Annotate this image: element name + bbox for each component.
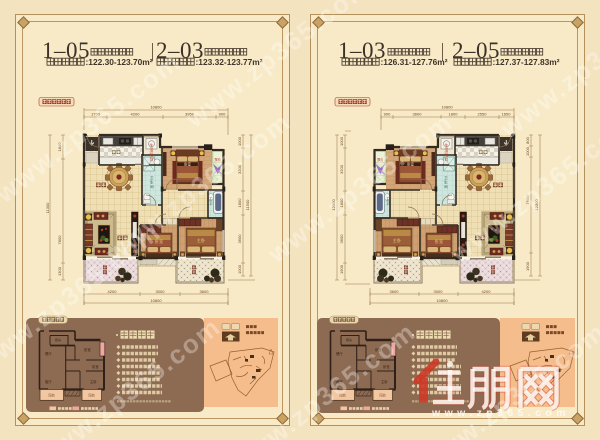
svg-text:卧室: 卧室 (84, 347, 91, 352)
svg-text:3600: 3600 (237, 234, 242, 244)
svg-text:12300: 12300 (331, 199, 336, 211)
svg-text:10800: 10800 (441, 105, 453, 110)
svg-text:台: 台 (445, 157, 449, 162)
svg-text:4200: 4200 (131, 112, 141, 117)
svg-text:阳台: 阳台 (49, 393, 55, 398)
svg-text:厨房: 厨房 (55, 337, 61, 342)
svg-text:主卧: 主卧 (393, 237, 401, 244)
svg-text:3200: 3200 (339, 164, 344, 174)
svg-text:生: 生 (444, 180, 448, 185)
svg-text:主卧: 主卧 (197, 237, 205, 244)
svg-text:4200: 4200 (108, 289, 118, 294)
svg-text:卫: 卫 (150, 176, 154, 180)
svg-text:生: 生 (150, 143, 154, 148)
svg-text::123.32-123.77m²: :123.32-123.77m² (196, 57, 263, 67)
svg-text:生: 生 (150, 180, 154, 185)
svg-text:卧室: 卧室 (435, 238, 443, 245)
svg-text:3600: 3600 (339, 234, 344, 244)
svg-text:1900: 1900 (339, 264, 344, 274)
svg-text::127.37-127.83m²: :127.37-127.83m² (493, 57, 560, 67)
svg-text:主卧: 主卧 (90, 379, 97, 384)
svg-text:阳: 阳 (150, 152, 154, 157)
svg-text:客厅: 客厅 (336, 379, 343, 384)
svg-text:3600: 3600 (390, 289, 400, 294)
svg-text:主卧: 主卧 (381, 379, 388, 384)
svg-text:10800: 10800 (436, 298, 448, 303)
svg-text:阳: 阳 (445, 152, 449, 157)
svg-text:卧室: 卧室 (184, 162, 191, 167)
svg-text:卫: 卫 (444, 176, 448, 180)
svg-text:2550: 2550 (478, 112, 488, 117)
svg-text:1900: 1900 (525, 261, 530, 271)
svg-text:生: 生 (445, 143, 449, 148)
svg-text:卧室: 卧室 (375, 347, 382, 352)
svg-text:11300: 11300 (45, 202, 50, 214)
svg-text:7800: 7800 (57, 235, 62, 245)
svg-text:阳台: 阳台 (89, 393, 95, 398)
svg-text:7600: 7600 (525, 195, 530, 205)
svg-text:900: 900 (384, 112, 391, 117)
svg-text:1000: 1000 (525, 146, 530, 156)
svg-text:3950: 3950 (185, 112, 195, 117)
svg-text:4200: 4200 (482, 289, 492, 294)
svg-text:阳台: 阳台 (380, 393, 386, 398)
svg-text:间: 间 (444, 184, 448, 189)
svg-text:3000: 3000 (434, 289, 444, 294)
svg-text:10800: 10800 (150, 105, 162, 110)
svg-text:主: 主 (209, 196, 213, 201)
svg-text:1000: 1000 (339, 136, 344, 146)
svg-text:11500: 11500 (245, 199, 250, 211)
svg-text:卧室: 卧室 (92, 364, 99, 369)
svg-text:12300: 12300 (534, 199, 539, 211)
svg-text:飘窗: 飘窗 (377, 157, 383, 162)
svg-text:阳台: 阳台 (340, 393, 346, 398)
svg-text:10800: 10800 (150, 298, 162, 303)
svg-text:主: 主 (386, 196, 390, 201)
svg-text:卧室: 卧室 (155, 238, 163, 245)
svg-text:3600: 3600 (200, 289, 210, 294)
svg-text:卫: 卫 (209, 202, 213, 206)
svg-text:餐厅: 餐厅 (45, 351, 52, 356)
svg-text:卧室: 卧室 (407, 162, 414, 167)
svg-text:3000: 3000 (156, 289, 166, 294)
svg-text:活: 活 (445, 148, 449, 153)
svg-text::126.31-127.76m²: :126.31-127.76m² (381, 57, 448, 67)
svg-text:台: 台 (150, 157, 154, 162)
svg-text:900: 900 (219, 112, 226, 117)
svg-text:1000: 1000 (237, 264, 242, 274)
svg-text:1800: 1800 (237, 198, 242, 208)
svg-text:厨房: 厨房 (346, 337, 352, 342)
svg-text:800: 800 (525, 136, 530, 143)
svg-text:1650: 1650 (502, 112, 512, 117)
svg-text:飘窗: 飘窗 (215, 157, 221, 162)
svg-text:1800: 1800 (339, 198, 344, 208)
svg-text:1800: 1800 (449, 112, 459, 117)
svg-text:3200: 3200 (237, 164, 242, 174)
svg-text:www.zp365.com: www.zp365.com (431, 407, 570, 419)
svg-text:餐厅: 餐厅 (336, 351, 343, 356)
svg-text:客厅: 客厅 (45, 379, 52, 384)
svg-text:1750: 1750 (91, 112, 101, 117)
svg-text:1000: 1000 (237, 136, 242, 146)
svg-text:间: 间 (150, 184, 154, 189)
svg-text:卧室: 卧室 (383, 364, 390, 369)
svg-text:3600: 3600 (413, 112, 423, 117)
svg-text:活: 活 (150, 148, 154, 153)
svg-text::122.30-123.70m²: :122.30-123.70m² (86, 57, 153, 67)
svg-text:1300: 1300 (57, 266, 62, 276)
svg-text:1800: 1800 (57, 142, 62, 152)
svg-text:卫: 卫 (386, 202, 390, 206)
